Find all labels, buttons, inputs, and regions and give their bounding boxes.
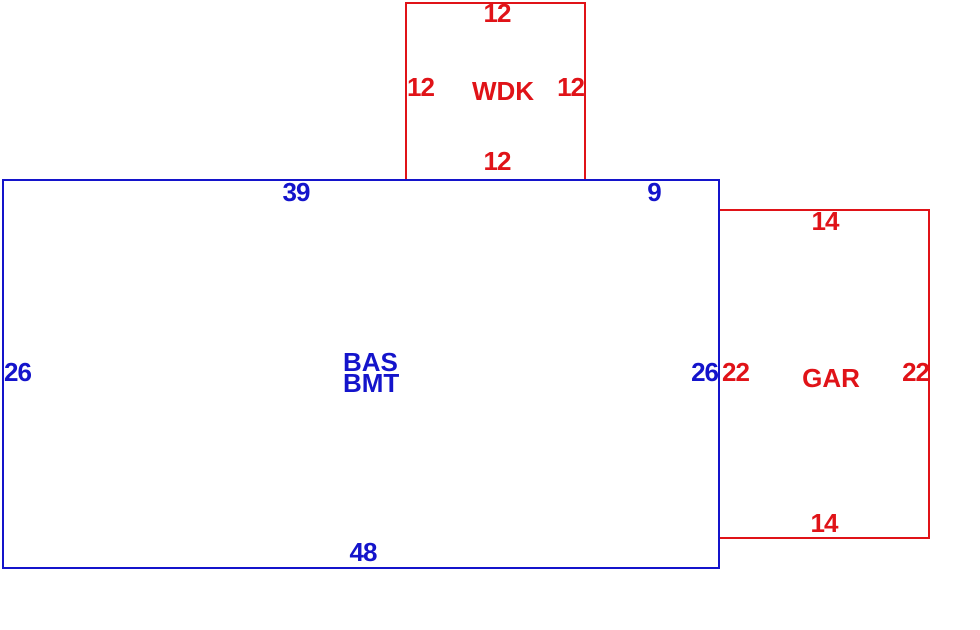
bas-dim-top-left: 39 <box>283 179 310 205</box>
wdk-dim-bottom: 12 <box>484 148 511 174</box>
bas-area-label: BAS BMT <box>343 352 399 394</box>
floorplan-sketch: 12 12 12 WDK 12 39 9 26 26 BAS BMT 48 14… <box>0 0 980 630</box>
gar-dim-top: 14 <box>812 208 839 234</box>
gar-dim-right: 22 <box>902 359 929 385</box>
bas-dim-right: 26 <box>691 359 718 385</box>
wdk-dim-left: 12 <box>407 74 434 100</box>
wdk-area-label: WDK <box>472 78 534 104</box>
gar-dim-left: 22 <box>722 359 749 385</box>
bas-dim-bottom: 48 <box>350 539 377 565</box>
wdk-dim-top: 12 <box>484 0 511 26</box>
gar-area-label: GAR <box>802 365 860 391</box>
wdk-dim-right: 12 <box>557 74 584 100</box>
bas-dim-left: 26 <box>4 359 31 385</box>
gar-dim-bottom: 14 <box>811 510 838 536</box>
bas-dim-top-right: 9 <box>647 179 660 205</box>
